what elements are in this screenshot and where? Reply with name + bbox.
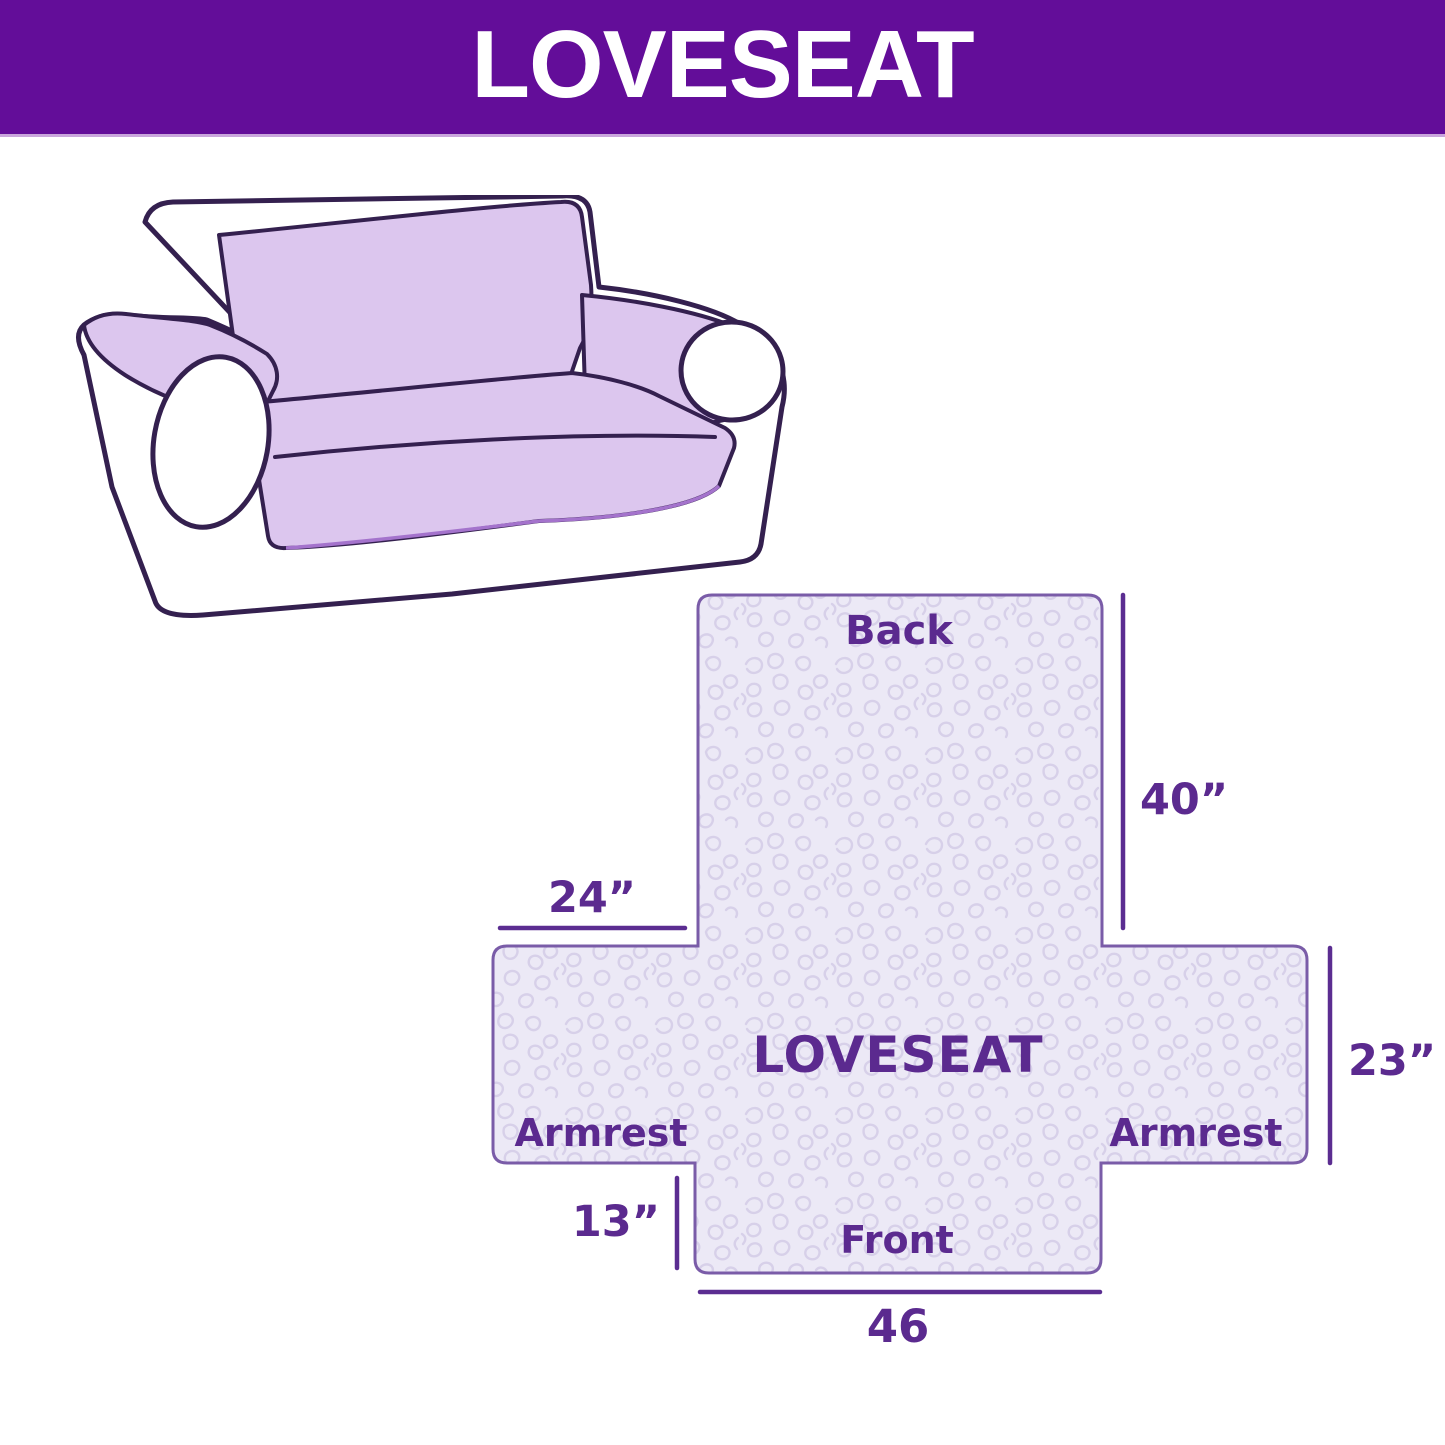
label-back: Back: [845, 608, 954, 654]
dim-armrest-height: 23”: [1348, 1036, 1436, 1086]
page-title: LOVESEAT: [471, 17, 973, 113]
cover-flat-layout: Back LOVESEAT Armrest Armrest Front 40” …: [470, 560, 1445, 1360]
label-front: Front: [840, 1218, 954, 1262]
dim-front-skirt-height: 13”: [572, 1197, 660, 1247]
label-center: LOVESEAT: [752, 1026, 1043, 1084]
dim-front-width: 46: [867, 1300, 930, 1353]
label-armrest-left: Armrest: [514, 1111, 687, 1155]
cover-dimension-diagram: Back LOVESEAT Armrest Armrest Front 40” …: [470, 560, 1445, 1360]
cover-shape: [493, 595, 1307, 1273]
header-banner: LOVESEAT: [0, 0, 1445, 137]
label-armrest-right: Armrest: [1109, 1111, 1282, 1155]
dim-back-height: 40”: [1140, 775, 1228, 825]
dim-armrest-top-width: 24”: [548, 873, 636, 923]
